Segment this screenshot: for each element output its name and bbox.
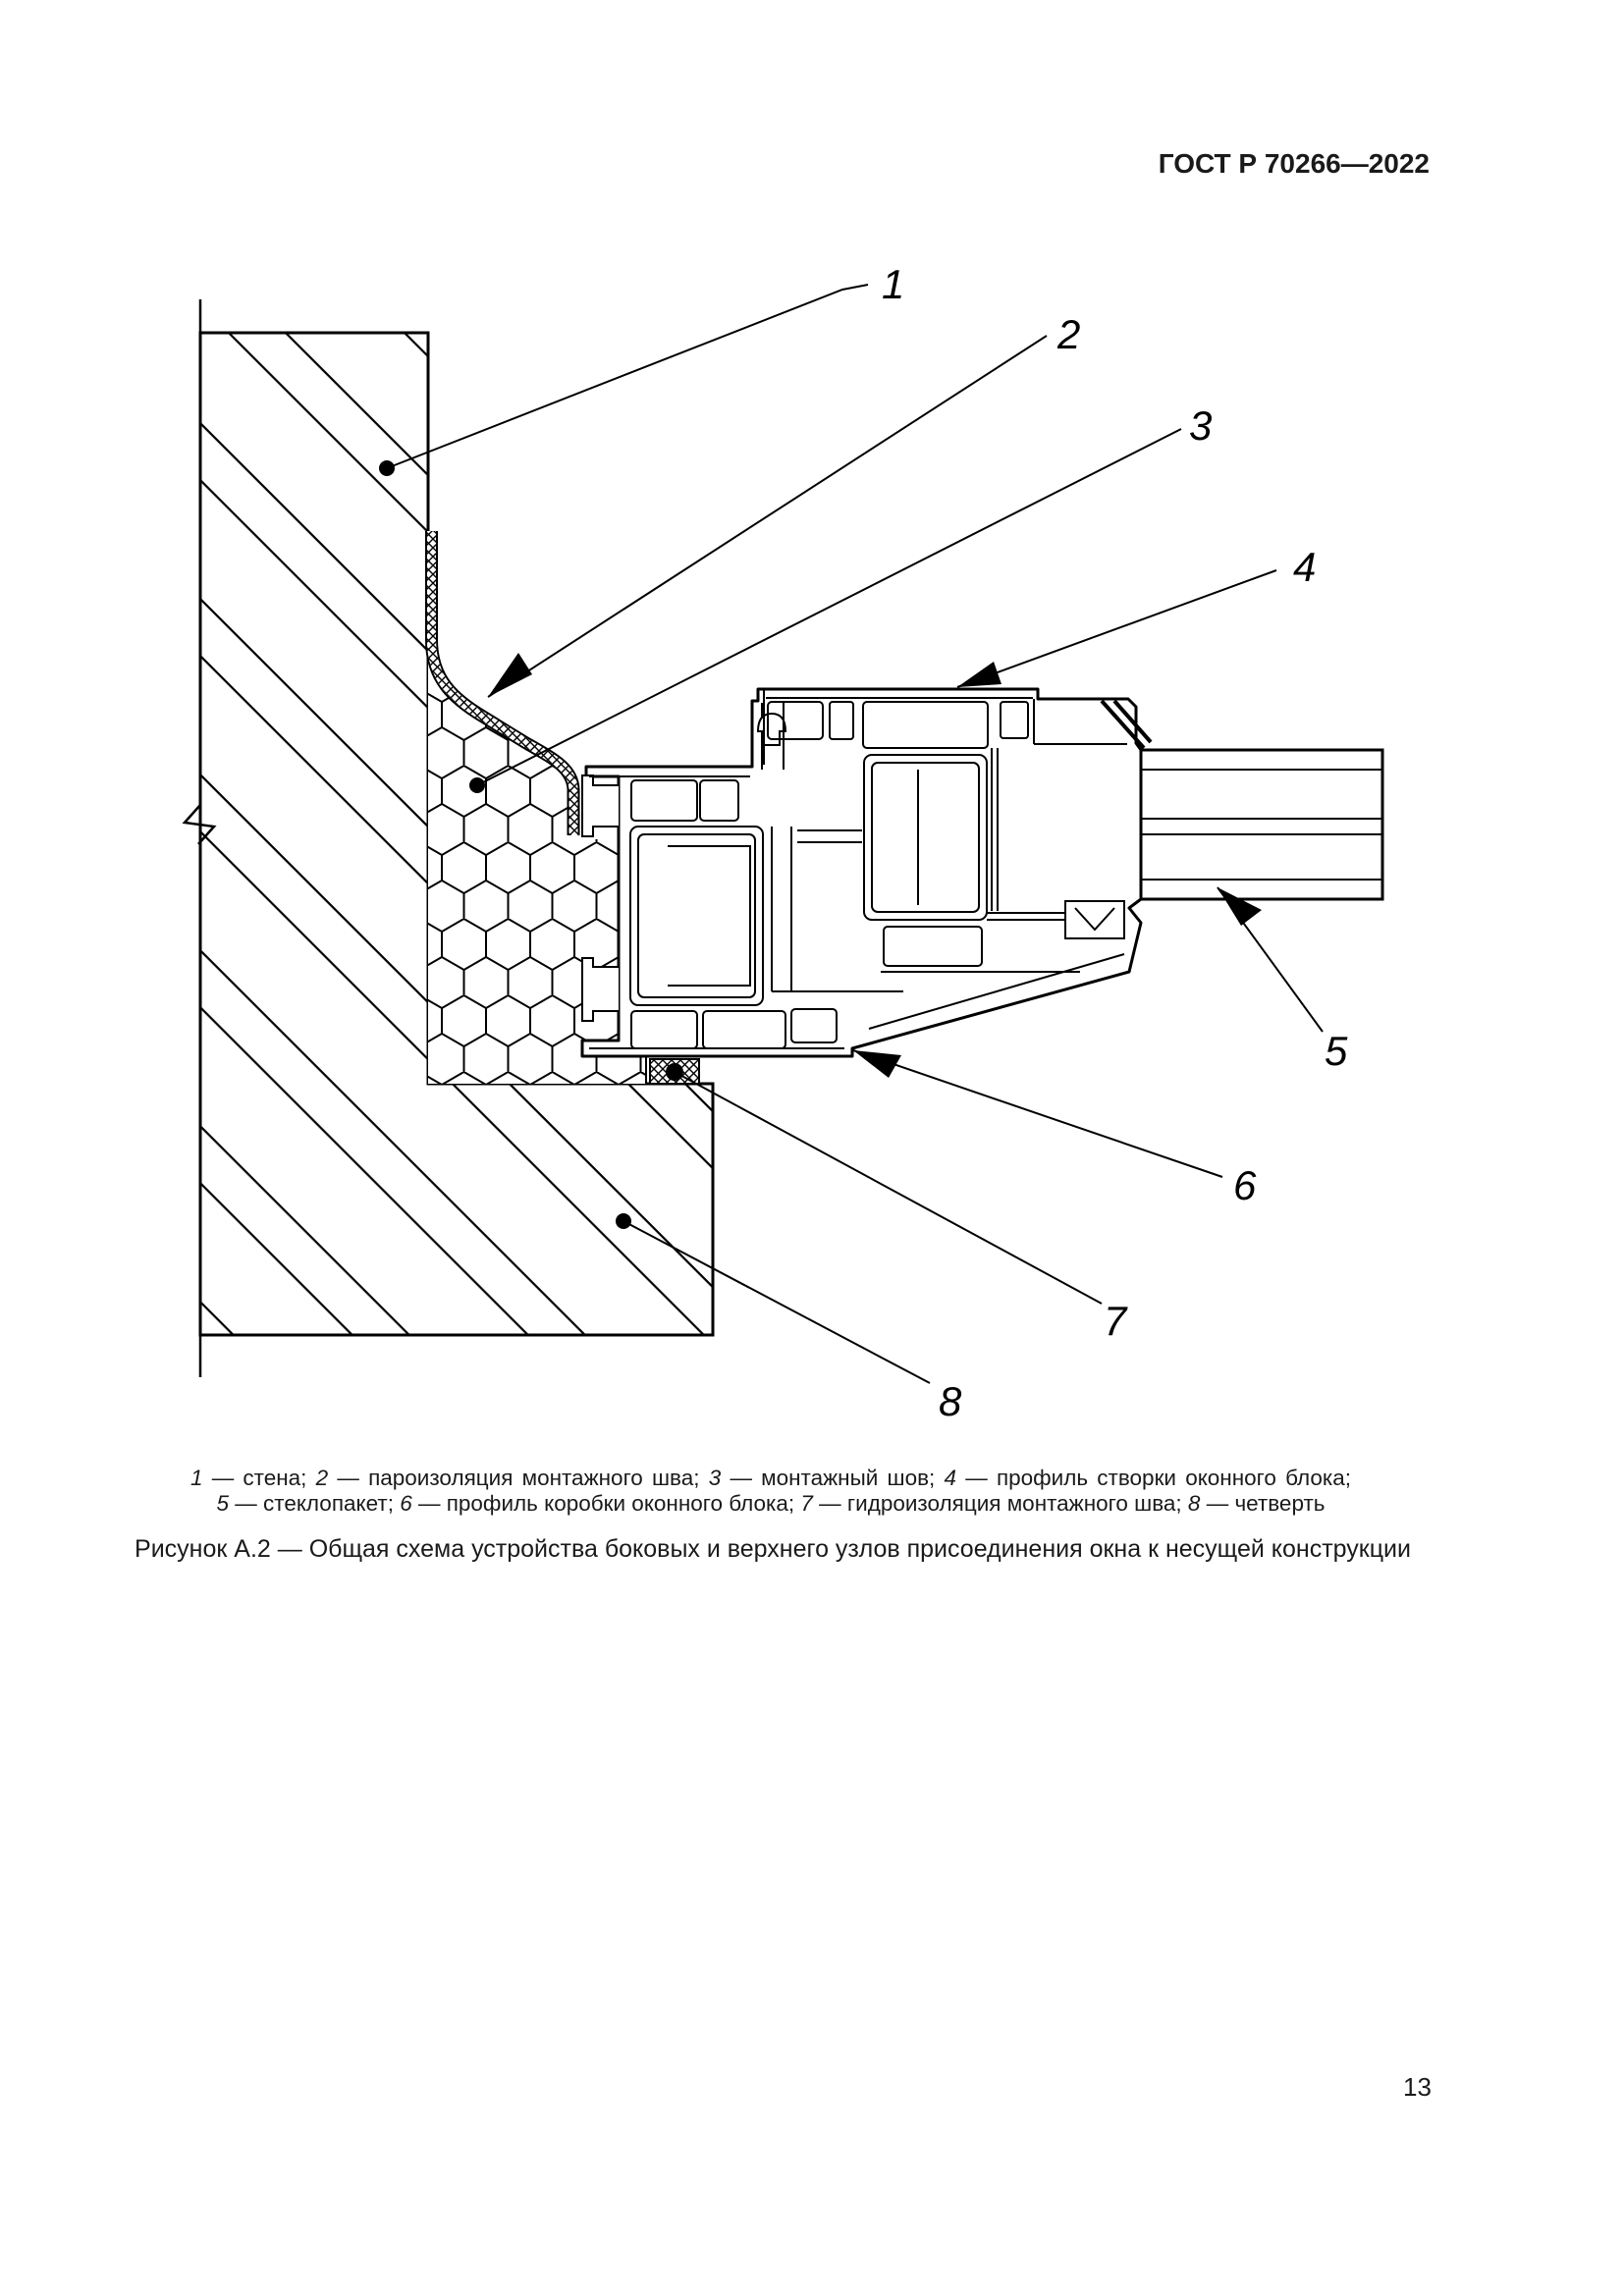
- svg-text:5: 5: [1325, 1028, 1348, 1074]
- svg-text:2: 2: [1056, 311, 1080, 357]
- svg-text:7: 7: [1104, 1298, 1128, 1344]
- svg-text:1: 1: [882, 261, 904, 307]
- svg-text:4: 4: [1293, 544, 1316, 590]
- svg-text:3: 3: [1189, 402, 1212, 449]
- svg-text:6: 6: [1233, 1162, 1257, 1208]
- svg-text:8: 8: [939, 1378, 962, 1424]
